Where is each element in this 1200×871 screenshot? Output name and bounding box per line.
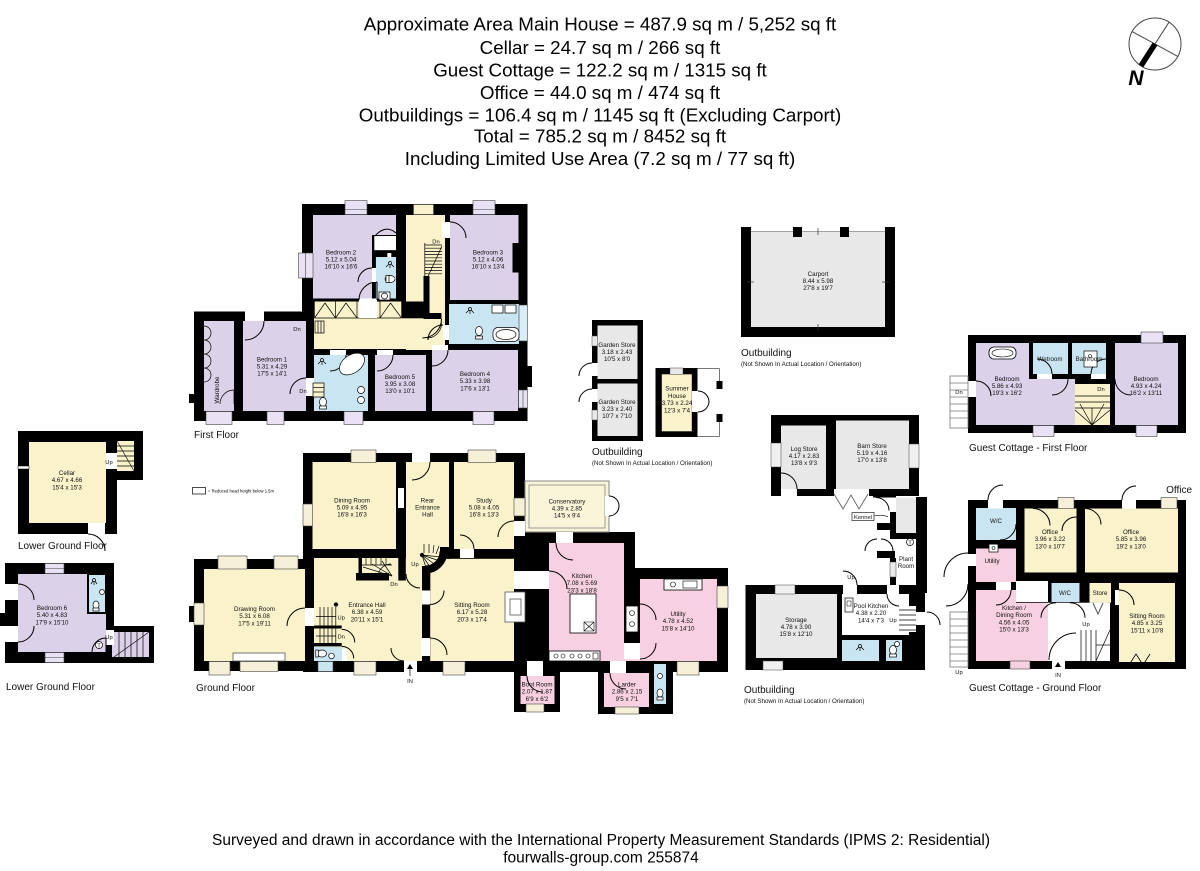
svg-text:Dn: Dn xyxy=(299,389,306,395)
svg-text:Garden Store: Garden Store xyxy=(598,342,636,349)
svg-text:Total = 785.2 sq m / 8452 sq f: Total = 785.2 sq m / 8452 sq ft xyxy=(474,126,727,147)
svg-text:W/C: W/C xyxy=(990,518,1003,525)
svg-text:8.44 x 5.98: 8.44 x 5.98 xyxy=(803,278,834,285)
svg-text:16'10 x 16'6: 16'10 x 16'6 xyxy=(325,264,359,271)
svg-text:Garden Store: Garden Store xyxy=(598,399,636,406)
svg-text:Utility: Utility xyxy=(670,611,686,618)
svg-text:Pool Kitchen: Pool Kitchen xyxy=(854,603,889,610)
svg-text:N: N xyxy=(1128,67,1144,90)
svg-text:Up: Up xyxy=(889,618,896,624)
svg-text:15'4 x 15'3: 15'4 x 15'3 xyxy=(52,484,82,491)
svg-text:5.19 x 4.16: 5.19 x 4.16 xyxy=(857,450,888,457)
svg-text:23'3 x 18'8: 23'3 x 18'8 xyxy=(567,587,597,594)
svg-text:W/C: W/C xyxy=(1059,590,1072,597)
svg-text:Dining Room: Dining Room xyxy=(334,497,370,504)
svg-text:Wardrobe: Wardrobe xyxy=(214,376,221,403)
svg-text:Bedroom 3: Bedroom 3 xyxy=(473,249,504,256)
svg-text:Plant: Plant xyxy=(899,556,913,563)
svg-text:House: House xyxy=(668,393,686,400)
svg-text:27'8 x 19'7: 27'8 x 19'7 xyxy=(803,285,833,292)
svg-text:5.08 x 4.05: 5.08 x 4.05 xyxy=(469,505,500,512)
svg-text:Bedroom 1: Bedroom 1 xyxy=(257,356,288,363)
svg-text:13'0 x 10'7: 13'0 x 10'7 xyxy=(1035,543,1065,550)
svg-text:Drawing Room: Drawing Room xyxy=(234,606,275,613)
svg-text:2.86 x 2.15: 2.86 x 2.15 xyxy=(612,689,643,696)
svg-text:Entrance: Entrance xyxy=(415,505,440,512)
svg-text:4.17 x 2.83: 4.17 x 2.83 xyxy=(789,453,820,460)
svg-text:4.93 x 4.24: 4.93 x 4.24 xyxy=(1131,383,1162,390)
svg-text:16'10 x 13'4: 16'10 x 13'4 xyxy=(472,264,506,271)
svg-text:Entrance Hall: Entrance Hall xyxy=(348,602,385,609)
svg-text:Cellar = 24.7 sq m / 266 sq ft: Cellar = 24.7 sq m / 266 sq ft xyxy=(480,37,721,58)
svg-text:17'5 x 14'1: 17'5 x 14'1 xyxy=(257,371,287,378)
svg-text:Guest Cottage = 122.2 sq m / 1: Guest Cottage = 122.2 sq m / 1315 sq ft xyxy=(433,60,767,81)
svg-text:Bathroom: Bathroom xyxy=(1076,356,1103,363)
svg-text:3.18 x 2.43: 3.18 x 2.43 xyxy=(602,349,633,356)
svg-text:Kitchen: Kitchen xyxy=(572,573,593,580)
svg-text:Storage: Storage xyxy=(785,617,807,624)
svg-text:Bedroom 6: Bedroom 6 xyxy=(37,605,68,612)
svg-text:Kitchen /: Kitchen / xyxy=(1002,605,1026,612)
svg-text:Office = 44.0 sq m / 474 sq ft: Office = 44.0 sq m / 474 sq ft xyxy=(480,82,721,103)
svg-text:3.96 x 3.22: 3.96 x 3.22 xyxy=(1035,536,1066,543)
svg-text:6.38 x 4.59: 6.38 x 4.59 xyxy=(352,609,383,616)
svg-text:6'9 x 6'2: 6'9 x 6'2 xyxy=(526,696,549,703)
svg-text:Store: Store xyxy=(1093,590,1108,597)
svg-text:Office: Office xyxy=(1166,485,1192,496)
svg-text:Dining Room: Dining Room xyxy=(996,612,1032,619)
svg-text:(Not Shown In Actual Location: (Not Shown In Actual Location / Orientat… xyxy=(741,361,861,368)
svg-text:16'2 x 13'11: 16'2 x 13'11 xyxy=(1130,390,1163,397)
svg-text:Hall: Hall xyxy=(422,512,433,519)
svg-text:Dn: Dn xyxy=(338,635,345,641)
svg-text:Bedroom: Bedroom xyxy=(1133,376,1158,383)
svg-text:IN: IN xyxy=(407,679,413,685)
svg-text:Outbuilding: Outbuilding xyxy=(744,685,795,696)
svg-text:Dn: Dn xyxy=(955,390,962,396)
svg-text:5.33 x 3.98: 5.33 x 3.98 xyxy=(460,378,491,385)
svg-text:4.78 x 3.90: 4.78 x 3.90 xyxy=(781,624,812,631)
svg-text:Ground Floor: Ground Floor xyxy=(196,683,256,694)
svg-text:(Not Shown In Actual Location: (Not Shown In Actual Location / Orientat… xyxy=(592,460,712,467)
svg-text:7.08 x 5.69: 7.08 x 5.69 xyxy=(567,580,598,587)
svg-text:Larder: Larder xyxy=(618,682,636,689)
svg-text:16'8 x 13'3: 16'8 x 13'3 xyxy=(469,512,499,519)
svg-text:17'9 x 15'10: 17'9 x 15'10 xyxy=(36,619,70,626)
svg-text:15'11 x 10'8: 15'11 x 10'8 xyxy=(1131,627,1164,634)
svg-text:Outbuilding: Outbuilding xyxy=(592,447,643,458)
svg-text:Rear: Rear xyxy=(421,497,434,504)
svg-text:Surveyed and drawn in accordan: Surveyed and drawn in accordance with th… xyxy=(212,832,990,849)
svg-text:Dn: Dn xyxy=(390,582,397,588)
svg-text:Up: Up xyxy=(411,562,418,568)
svg-text:Summer: Summer xyxy=(665,386,688,393)
svg-text:(Not Shown In Actual Location: (Not Shown In Actual Location / Orientat… xyxy=(744,698,864,705)
svg-text:13'0 x 10'1: 13'0 x 10'1 xyxy=(385,388,415,395)
svg-text:10'7 x 7'10: 10'7 x 7'10 xyxy=(602,413,632,420)
svg-text:Dn: Dn xyxy=(432,240,439,246)
svg-text:Up: Up xyxy=(338,616,345,622)
svg-text:16'8 x 16'3: 16'8 x 16'3 xyxy=(337,512,367,519)
svg-text:Sitting Room: Sitting Room xyxy=(454,602,489,609)
svg-text:14'5 x 9'4: 14'5 x 9'4 xyxy=(554,513,581,520)
svg-text:Guest Cottage - Ground Floor: Guest Cottage - Ground Floor xyxy=(969,683,1102,694)
svg-text:Bedroom 4: Bedroom 4 xyxy=(460,371,491,378)
svg-text:Boot Room: Boot Room xyxy=(522,682,553,689)
svg-text:First Floor: First Floor xyxy=(194,430,240,441)
svg-text:Including Limited Use Area (7.: Including Limited Use Area (7.2 sq m / 7… xyxy=(405,148,795,169)
svg-text:Log Store: Log Store xyxy=(791,446,818,453)
svg-text:Study: Study xyxy=(476,497,493,504)
svg-text:19'2 x 13'0: 19'2 x 13'0 xyxy=(1116,543,1146,550)
svg-text:Room: Room xyxy=(898,563,915,570)
svg-text:10'5 x 8'0: 10'5 x 8'0 xyxy=(604,356,631,363)
svg-text:20'11 x 15'1: 20'11 x 15'1 xyxy=(351,616,384,623)
svg-text:15'0 x 13'3: 15'0 x 13'3 xyxy=(999,627,1029,634)
svg-text:15'8 x 12'10: 15'8 x 12'10 xyxy=(780,631,814,638)
svg-text:12'3 x 7'4: 12'3 x 7'4 xyxy=(664,407,691,414)
svg-text:6.17 x 5.28: 6.17 x 5.28 xyxy=(457,609,488,616)
svg-text:Guest Cottage - First Floor: Guest Cottage - First Floor xyxy=(969,443,1088,454)
svg-text:3.73 x 2.24: 3.73 x 2.24 xyxy=(662,400,693,407)
svg-text:Up: Up xyxy=(1082,622,1089,628)
svg-text:Utility: Utility xyxy=(984,558,1000,565)
svg-text:Barn Store: Barn Store xyxy=(857,443,887,450)
svg-text:5.85 x 3.96: 5.85 x 3.96 xyxy=(1116,536,1147,543)
svg-text:4.56 x 4.05: 4.56 x 4.05 xyxy=(999,619,1030,626)
svg-text:17'5 x 19'11: 17'5 x 19'11 xyxy=(238,620,271,627)
svg-text:15'8 x 14'10: 15'8 x 14'10 xyxy=(662,625,696,632)
svg-text:4.39 x 2.85: 4.39 x 2.85 xyxy=(552,506,583,513)
svg-text:Kennel: Kennel xyxy=(854,515,872,521)
svg-text:Up: Up xyxy=(847,575,854,581)
svg-text:17'6 x 13'1: 17'6 x 13'1 xyxy=(460,385,490,392)
svg-text:Cellar: Cellar xyxy=(59,470,75,477)
svg-text:20'3 x 17'4: 20'3 x 17'4 xyxy=(457,616,487,623)
svg-text:Up: Up xyxy=(955,670,962,676)
svg-text:4.67 x 4.66: 4.67 x 4.66 xyxy=(52,477,83,484)
svg-text:17'0 x 13'8: 17'0 x 13'8 xyxy=(857,457,887,464)
svg-text:Bedroom 2: Bedroom 2 xyxy=(326,249,357,256)
svg-text:5.31 x 4.29: 5.31 x 4.29 xyxy=(257,364,288,371)
svg-text:Outbuildings = 106.4 sq m / 11: Outbuildings = 106.4 sq m / 1145 sq ft (… xyxy=(359,105,841,126)
svg-text:13'8 x 9'3: 13'8 x 9'3 xyxy=(791,460,818,467)
svg-text:3.23 x 2.40: 3.23 x 2.40 xyxy=(602,406,633,413)
svg-text:Conservatory: Conservatory xyxy=(549,498,587,505)
svg-text:Sitting Room: Sitting Room xyxy=(1129,613,1164,620)
svg-text:5.09 x 4.95: 5.09 x 4.95 xyxy=(337,505,368,512)
svg-text:4.78 x 4.52: 4.78 x 4.52 xyxy=(663,618,694,625)
svg-text:19'3 x 16'2: 19'3 x 16'2 xyxy=(992,390,1022,397)
svg-text:Office: Office xyxy=(1123,529,1140,536)
svg-text:= Reduced head height below 1.: = Reduced head height below 1.5m xyxy=(208,489,275,494)
svg-text:4.85 x 3.25: 4.85 x 3.25 xyxy=(1132,620,1163,627)
svg-text:Lower Ground Floor: Lower Ground Floor xyxy=(6,682,96,693)
svg-text:5.12 x 4.06: 5.12 x 4.06 xyxy=(473,257,504,264)
svg-text:Lower Ground Floor: Lower Ground Floor xyxy=(18,541,108,552)
svg-text:IN: IN xyxy=(1055,673,1061,679)
svg-text:4.38 x 2.20: 4.38 x 2.20 xyxy=(856,610,887,617)
svg-text:Up: Up xyxy=(105,460,112,466)
svg-text:Wetroom: Wetroom xyxy=(1038,356,1063,363)
svg-text:5.31 x 6.08: 5.31 x 6.08 xyxy=(239,613,270,620)
svg-text:Office: Office xyxy=(1042,529,1059,536)
svg-text:Bedroom: Bedroom xyxy=(994,376,1019,383)
svg-text:5.40 x 4.83: 5.40 x 4.83 xyxy=(37,612,68,619)
svg-text:3.95 x 3.08: 3.95 x 3.08 xyxy=(385,381,416,388)
svg-text:Outbuilding: Outbuilding xyxy=(741,348,792,359)
svg-text:9'5 x 7'1: 9'5 x 7'1 xyxy=(616,696,639,703)
svg-text:Bedroom 5: Bedroom 5 xyxy=(385,374,416,381)
svg-text:5.12 x 5.04: 5.12 x 5.04 xyxy=(326,257,357,264)
svg-text:5.86 x 4.93: 5.86 x 4.93 xyxy=(992,383,1023,390)
svg-text:fourwalls-group.com 255874: fourwalls-group.com 255874 xyxy=(503,850,699,867)
svg-text:Approximate Area Main House =: Approximate Area Main House = 487.9 sq m… xyxy=(364,14,837,35)
svg-text:2.07 x 1.87: 2.07 x 1.87 xyxy=(522,689,553,696)
svg-text:Dn: Dn xyxy=(1097,387,1104,393)
svg-text:14'4 x 7'3: 14'4 x 7'3 xyxy=(858,617,885,624)
svg-text:Carport: Carport xyxy=(808,271,829,278)
svg-text:Dn: Dn xyxy=(293,327,300,333)
